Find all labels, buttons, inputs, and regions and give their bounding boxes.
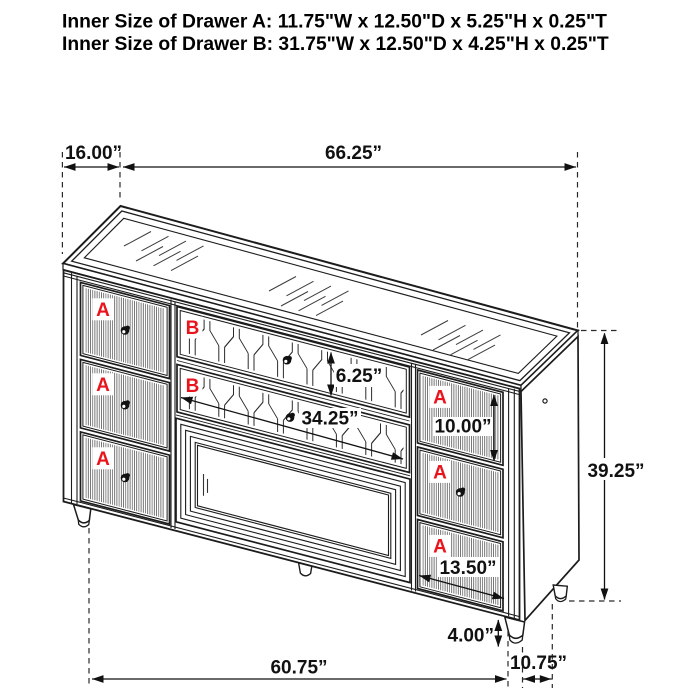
svg-text:A: A <box>433 536 447 557</box>
svg-text:A: A <box>433 462 447 483</box>
svg-text:6.25”: 6.25” <box>336 366 382 387</box>
svg-text:34.25”: 34.25” <box>301 409 358 430</box>
svg-text:66.25”: 66.25” <box>325 143 382 164</box>
svg-text:4.00”: 4.00” <box>448 626 494 647</box>
svg-text:60.75”: 60.75” <box>270 658 327 679</box>
svg-text:10.75”: 10.75” <box>510 653 567 674</box>
svg-text:B: B <box>186 318 200 339</box>
svg-text:A: A <box>96 300 110 321</box>
svg-text:Inner Size of Drawer B: 31.75": Inner Size of Drawer B: 31.75"W x 12.50"… <box>62 34 609 55</box>
svg-text:A: A <box>433 387 447 408</box>
svg-text:16.00”: 16.00” <box>65 143 122 164</box>
svg-text:A: A <box>96 449 110 470</box>
svg-text:B: B <box>186 376 200 397</box>
svg-text:13.50”: 13.50” <box>439 558 496 579</box>
svg-text:A: A <box>96 375 110 396</box>
svg-text:Inner Size of Drawer A: 11.75": Inner Size of Drawer A: 11.75"W x 12.50"… <box>62 12 607 33</box>
svg-text:39.25”: 39.25” <box>587 461 644 482</box>
svg-text:10.00”: 10.00” <box>434 417 491 438</box>
